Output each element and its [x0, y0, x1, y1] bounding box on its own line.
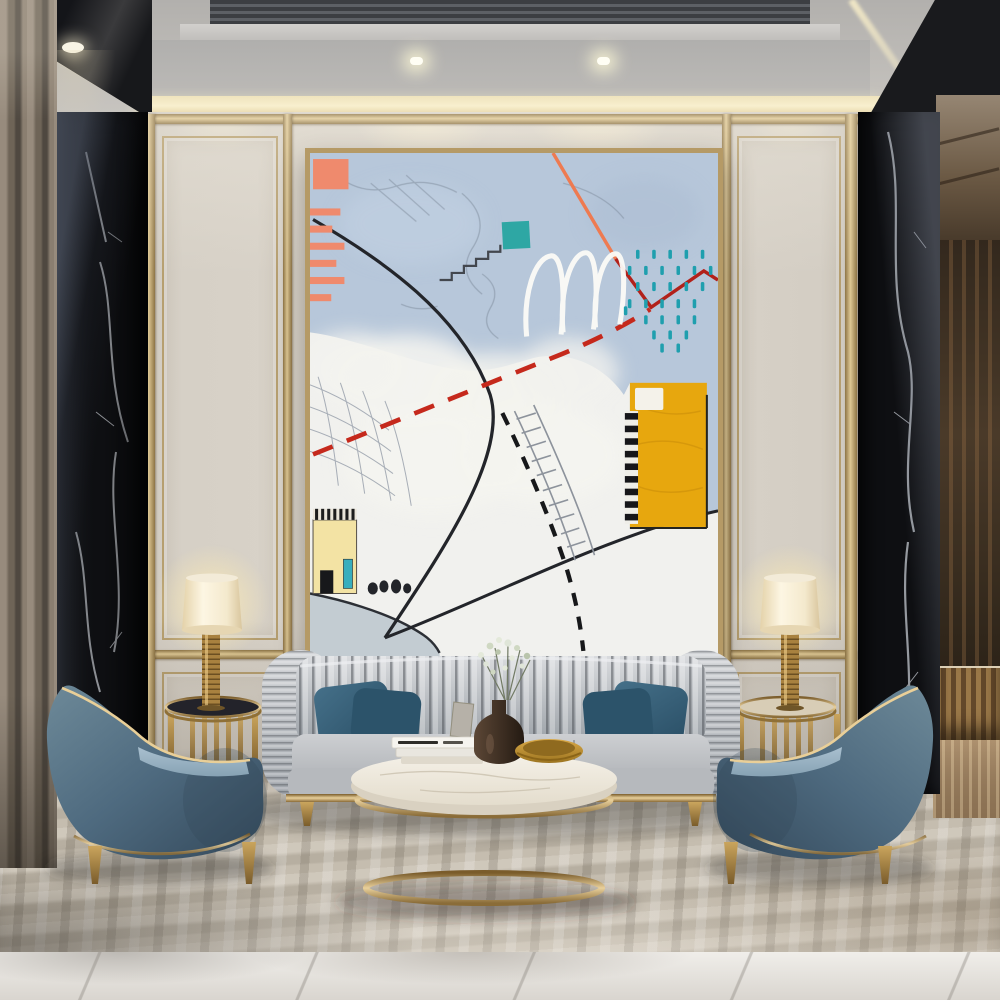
decor-card: [450, 702, 473, 738]
furniture-layer: [0, 0, 1000, 1000]
book-stack: [392, 737, 484, 764]
luxury-living-room-photo: [0, 0, 1000, 1000]
table-lamp-right: [732, 544, 848, 711]
lamp-shade: [760, 578, 820, 630]
lamp-shade: [182, 578, 242, 630]
lamp-stem: [781, 632, 799, 708]
table-lamp-left: [154, 544, 270, 711]
lamp-stem: [202, 632, 220, 708]
